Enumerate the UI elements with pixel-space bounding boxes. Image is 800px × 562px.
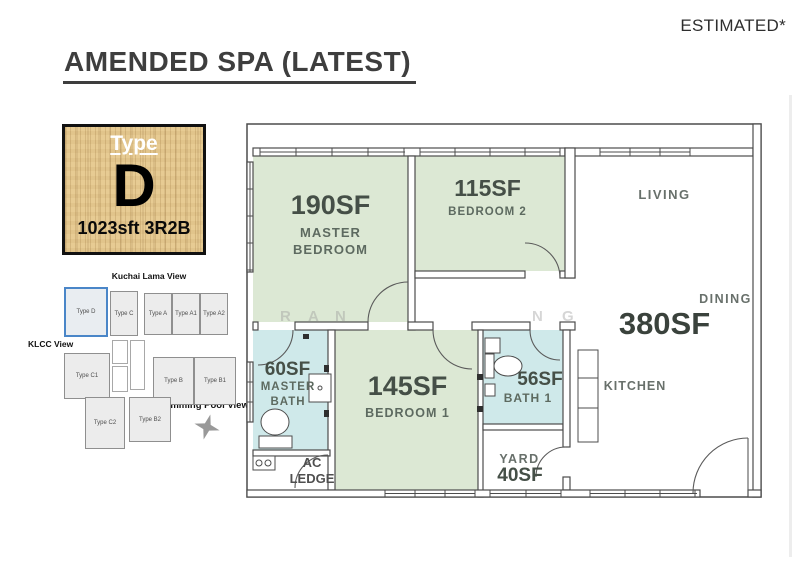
type-spec: 1023sft 3R2B — [65, 218, 203, 239]
kitchen-sink — [578, 378, 598, 408]
ac-fan-icon — [265, 460, 271, 466]
site-unit-type-c: Type C — [110, 291, 138, 336]
site-unit-type-a1: Type A1 — [172, 293, 200, 335]
master-bath-area: 60SF — [250, 359, 325, 381]
bedroom-2-label: BEDROOM 2 — [440, 206, 535, 218]
lift-core — [130, 340, 145, 390]
bath-1-label: BATH 1 — [494, 391, 562, 405]
watermark-letter: G — [562, 308, 574, 325]
entrance-door-arc — [693, 438, 748, 493]
site-unit-type-a2: Type A2 — [200, 293, 228, 335]
bath-1-sink — [485, 338, 500, 353]
site-unit-type-c2: Type C2 — [85, 397, 125, 449]
master-bath-label: MASTER BATH — [254, 380, 322, 410]
bath-1-toilet-tank — [485, 354, 494, 378]
bath-1-area: 56SF — [506, 369, 574, 391]
site-unit-type-b1: Type B1 — [194, 357, 236, 405]
yard-area: 40SF — [488, 465, 552, 487]
site-unit-type-d: Type D — [64, 287, 108, 337]
lift-core — [112, 340, 128, 364]
kitchen-label: KITCHEN — [599, 379, 671, 393]
master-bedroom-area: 190SF — [278, 190, 383, 221]
master-bath-toilet — [261, 409, 289, 435]
watermark-letter: A — [308, 308, 319, 325]
dining-label: DINING — [693, 292, 758, 306]
site-unit-type-c1: Type C1 — [64, 353, 110, 399]
compass-icon — [194, 414, 220, 440]
yard-label: YARD — [492, 452, 547, 466]
watermark-letter: R — [280, 308, 291, 325]
bedroom-1-area: 145SF — [355, 371, 460, 402]
master-bedroom-label: MASTER BEDROOM — [278, 224, 383, 258]
site-key-plan: Kuchai Lama View KLCC View Swimming Pool… — [28, 263, 250, 478]
unit-type-legend: Type D 1023sft 3R2B — [62, 124, 206, 255]
site-unit-type-b2: Type B2 — [129, 397, 171, 442]
lift-core — [112, 366, 128, 392]
view-label-klcc: KLCC View — [28, 339, 80, 349]
watermark-letter: N — [532, 308, 543, 325]
dining-area: 380SF — [607, 306, 722, 342]
page: ESTIMATED* AMENDED SPA (LATEST) Type D 1… — [0, 0, 800, 562]
bedroom-1-label: BEDROOM 1 — [355, 406, 460, 420]
view-label-kuchai-lama: Kuchai Lama View — [94, 271, 204, 281]
ac-fan-icon — [256, 460, 262, 466]
master-bath-toilet-tank — [259, 436, 292, 448]
kitchen-counter — [578, 408, 598, 442]
page-edge-line — [789, 95, 792, 557]
kitchen-counter — [578, 350, 598, 378]
estimated-note: ESTIMATED* — [680, 16, 786, 36]
bedroom-2-area: 115SF — [440, 175, 535, 202]
watermark-letter: N — [335, 308, 346, 325]
ac-ledge-label: AC LEDGE — [287, 455, 337, 487]
type-letter: D — [65, 157, 203, 215]
living-label: LIVING — [622, 187, 707, 202]
site-unit-type-a: Type A — [144, 293, 172, 335]
page-title: AMENDED SPA (LATEST) — [63, 46, 416, 84]
